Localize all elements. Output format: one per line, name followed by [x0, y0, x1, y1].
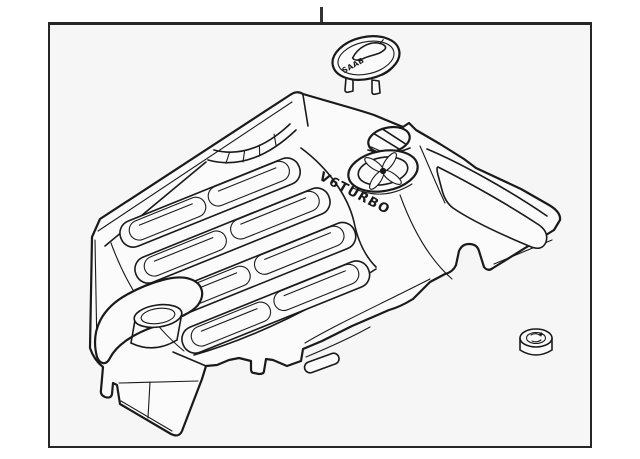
grommet-top	[520, 329, 552, 347]
engine-appearance-cover: V6TURBO	[90, 92, 560, 435]
cap-leg	[372, 80, 380, 94]
skirt-slot	[303, 352, 341, 375]
grommet-detail	[539, 332, 542, 335]
parts-diagram: SAAB	[0, 0, 640, 459]
mounting-grommet	[520, 329, 552, 355]
saab-emblem-cap: SAAB	[328, 30, 404, 94]
